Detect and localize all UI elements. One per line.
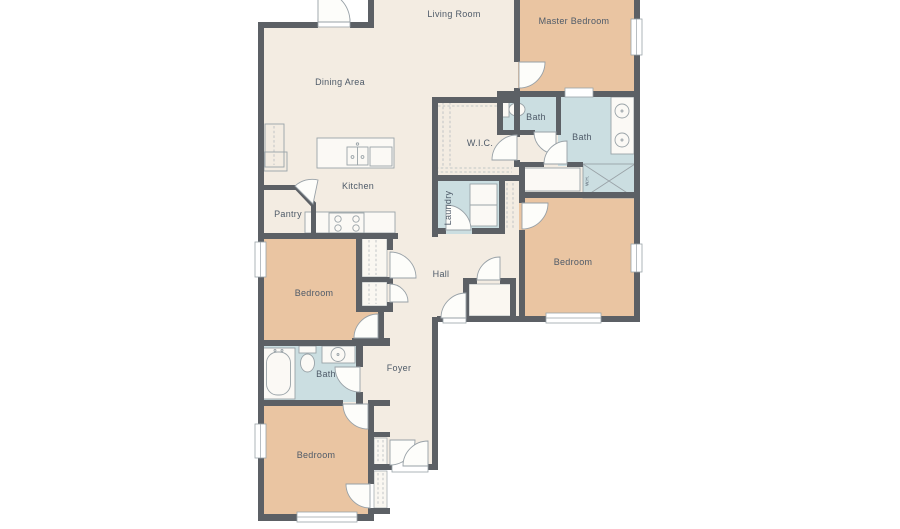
room-label-wic: W.I.C.	[467, 138, 493, 148]
room-label-living-room: Living Room	[427, 9, 480, 19]
toilet-icon	[502, 102, 525, 117]
room-label-foyer: Foyer	[387, 363, 412, 373]
cased-opening	[565, 88, 593, 97]
room-label-hall: Hall	[433, 269, 450, 279]
patio-door-swing	[318, 0, 350, 22]
room-label-water-heater: W.H.	[585, 176, 590, 186]
room-label-laundry: Laundry	[443, 191, 453, 226]
room-label-kitchen: Kitchen	[342, 181, 374, 191]
kitchen-counter	[305, 212, 395, 233]
room-label-bath-hall: Bath	[316, 369, 336, 379]
linen-closet	[524, 168, 580, 191]
floorplan-image: Living Room Master Bedroom Dining Area B…	[0, 0, 900, 529]
room-label-bedroom-right: Bedroom	[554, 257, 593, 267]
toilet2-icon	[299, 346, 316, 372]
double-vanity-icon	[611, 97, 634, 154]
room-label-master-bedroom: Master Bedroom	[539, 16, 610, 26]
sink-vanity-icon	[322, 346, 355, 363]
room-label-bedroom-bottom: Bedroom	[297, 450, 336, 460]
washer-dryer-icon	[470, 184, 497, 226]
bathtub-icon	[262, 348, 295, 399]
room-label-bedroom-left: Bedroom	[295, 288, 334, 298]
room-label-bath-toilet: Bath	[526, 112, 546, 122]
room-label-pantry: Pantry	[274, 209, 302, 219]
kitchen-island	[317, 138, 394, 168]
room-label-dining-area: Dining Area	[315, 77, 365, 87]
floorplan-canvas	[0, 0, 900, 529]
room-label-bath-master: Bath	[572, 132, 592, 142]
